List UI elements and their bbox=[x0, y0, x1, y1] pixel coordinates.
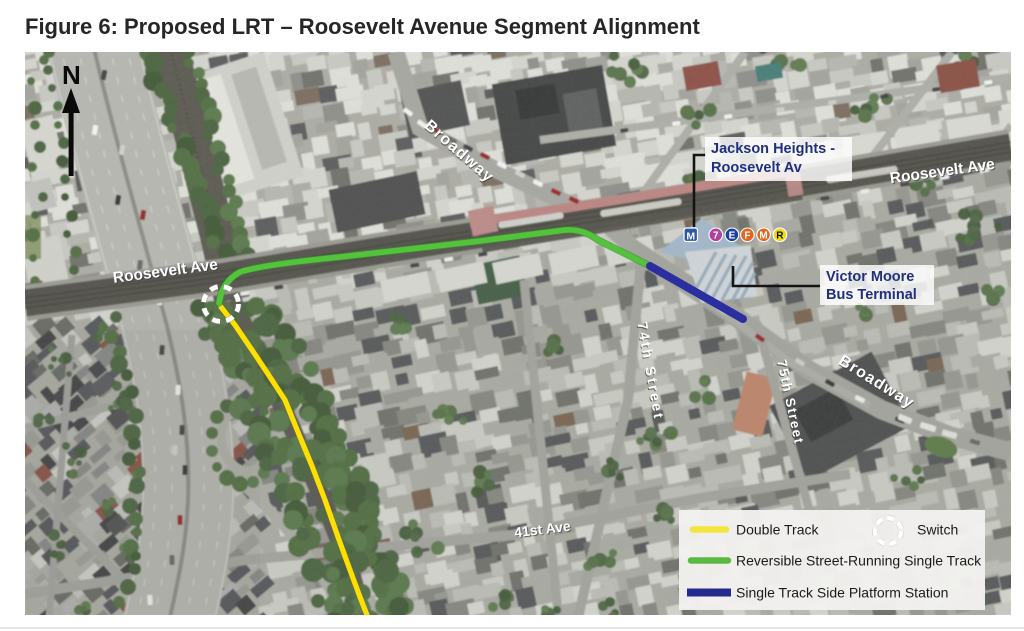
svg-text:7: 7 bbox=[713, 231, 719, 242]
svg-text:M: M bbox=[759, 231, 767, 242]
svg-text:F: F bbox=[744, 231, 750, 242]
svg-text:Switch: Switch bbox=[917, 522, 958, 538]
svg-text:Roosevelt Av: Roosevelt Av bbox=[711, 160, 802, 176]
svg-text:Reversible Street-Running Sing: Reversible Street-Running Single Track bbox=[736, 553, 982, 569]
svg-text:Jackson Heights -: Jackson Heights - bbox=[711, 141, 835, 157]
svg-text:Double Track: Double Track bbox=[736, 522, 819, 538]
svg-text:M: M bbox=[686, 231, 695, 243]
svg-text:Single Track Side Platform Sta: Single Track Side Platform Station bbox=[736, 585, 948, 601]
svg-text:R: R bbox=[776, 231, 784, 242]
svg-text:E: E bbox=[729, 231, 736, 242]
svg-text:Bus Terminal: Bus Terminal bbox=[826, 287, 917, 303]
svg-text:Victor Moore: Victor Moore bbox=[826, 269, 914, 285]
svg-text:N: N bbox=[62, 60, 81, 90]
